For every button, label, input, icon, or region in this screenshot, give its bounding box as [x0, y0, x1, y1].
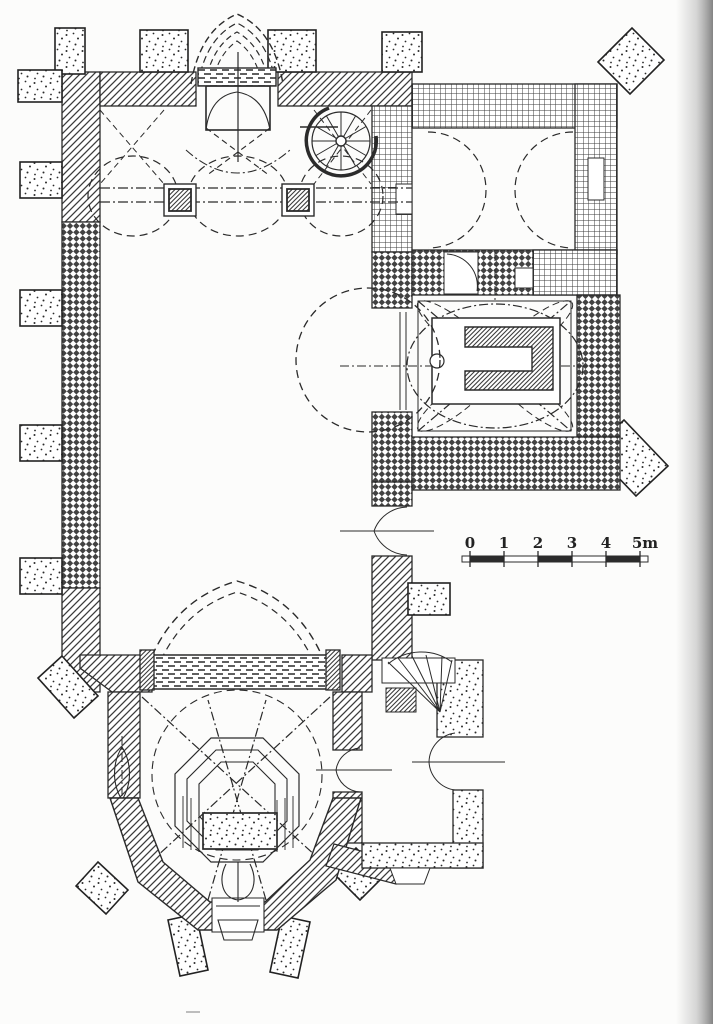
buttress-nw-up [55, 28, 85, 74]
scale-label-2: 2 [533, 534, 543, 552]
east-wall-check-2 [372, 412, 412, 482]
arch-impost-west [140, 650, 154, 690]
buttress-north-2 [268, 30, 316, 72]
nave-door-leafA [374, 507, 407, 531]
buttress-west-2 [20, 290, 62, 326]
chancel-east-wall-upper [333, 692, 362, 750]
buttress-north-3 [382, 32, 422, 72]
buttress-west-1 [20, 162, 62, 198]
bay-cross-west [100, 110, 164, 184]
east-wall-grid [372, 106, 412, 252]
triumphal-arch [140, 581, 340, 690]
scanned-page: 0 1 2 3 4 5m [0, 0, 713, 1024]
buttress-east-nave [408, 583, 450, 615]
side-chapel [296, 288, 620, 490]
buttress-apse-1 [76, 862, 128, 914]
buttress-nw-left [18, 70, 62, 102]
vault-bay-ellipse-2 [188, 156, 288, 236]
west-wall-upper [62, 72, 100, 222]
tower-vault-arc-east [515, 132, 573, 248]
door-swing-west-leafB [336, 770, 360, 792]
east-wall-diag [372, 556, 412, 660]
scale-label-3: 3 [567, 534, 577, 552]
annex-south-wall [362, 843, 483, 868]
scale-label-0: 0 [465, 534, 475, 552]
south-wall-east [342, 655, 372, 692]
altar-keystone [430, 354, 444, 368]
arch-band [152, 655, 328, 689]
nave-ogive-outer [152, 581, 322, 656]
chapel-passage-jambs [400, 312, 406, 410]
tower [412, 84, 617, 300]
scale-bar: 0 1 2 3 4 5m [462, 534, 658, 567]
window-leaf-left [222, 864, 238, 900]
annex-stair-hatch [386, 688, 416, 712]
tower-south-wall-grid [533, 250, 617, 295]
west-wall-mid [62, 222, 100, 588]
nave-east-door [340, 507, 434, 555]
tower-window-niche [588, 158, 604, 200]
scale-seg-5 [606, 556, 640, 562]
scale-seg-1 [470, 556, 504, 562]
sacristy-annex [362, 652, 505, 884]
scan-shadow [676, 0, 713, 1024]
annex-stair-zone [382, 658, 455, 683]
north-wall-east [278, 72, 412, 106]
pier-2 [282, 184, 314, 216]
window-leaf-right [238, 864, 254, 900]
nave-ogive-inner [161, 592, 313, 660]
stair-newel [336, 136, 346, 146]
spiral-staircase [306, 108, 376, 176]
pier-1 [164, 184, 196, 216]
scale-seg-3 [538, 556, 572, 562]
buttress-west-4 [20, 558, 62, 594]
north-wall-west [100, 72, 196, 106]
portal-lintel [198, 68, 276, 86]
tower-vault-arc-west [428, 132, 486, 248]
tower-south-gap [515, 268, 533, 288]
annex-step [390, 868, 430, 884]
scale-label-4: 4 [601, 534, 611, 552]
door-swing-west-leafA [336, 748, 360, 770]
buttress-west-3 [20, 425, 62, 461]
chapel-south-wall [412, 437, 620, 490]
nave-walls [62, 72, 412, 692]
narthex [88, 110, 412, 236]
chancel-west-wall [108, 692, 140, 798]
scale-label-1: 1 [499, 534, 509, 552]
church-floor-plan: 0 1 2 3 4 5m [0, 0, 713, 1024]
east-wall-check-3 [372, 482, 412, 506]
high-altar [203, 813, 277, 849]
arch-impost-east [326, 650, 340, 690]
door-swing-east-leafB [429, 762, 455, 790]
nave-door-leafB [374, 531, 407, 555]
buttress-north-1 [140, 30, 188, 72]
scale-label-5m: 5m [632, 534, 658, 552]
